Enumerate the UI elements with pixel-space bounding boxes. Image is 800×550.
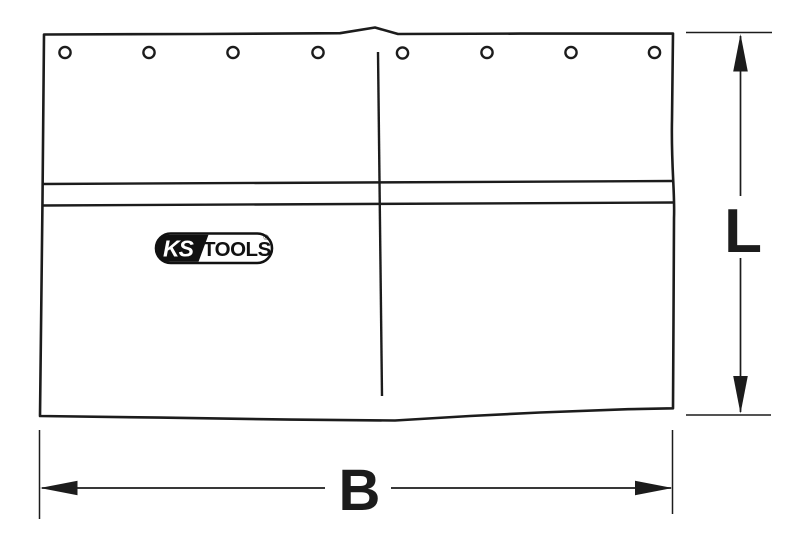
- logo-tools-text: TOOLS: [203, 238, 271, 261]
- width-dim-arrow-right: [635, 481, 673, 496]
- eyelet: [59, 47, 70, 58]
- eyelet: [312, 47, 323, 58]
- height-dimension: L: [686, 33, 772, 416]
- width-dimension-label: B: [339, 458, 381, 523]
- logo-ks-text: KS: [163, 236, 195, 262]
- height-dimension-label: L: [724, 197, 762, 266]
- height-dim-arrow-down: [733, 376, 748, 414]
- width-dim-arrow-left: [40, 481, 78, 496]
- ks-tools-logo: KS TOOLS ®: [156, 234, 272, 264]
- eyelet: [227, 47, 238, 58]
- eyelet: [481, 47, 492, 58]
- logo-registered-mark: ®: [264, 234, 270, 242]
- eyelet: [565, 47, 576, 58]
- width-dimension: B: [40, 430, 673, 523]
- eyelet: [649, 47, 660, 58]
- drawing-canvas: KS TOOLS ® L B: [0, 0, 800, 550]
- eyelet: [397, 47, 408, 58]
- curtain-outline: [40, 28, 674, 421]
- welding-curtain-diagram: KS TOOLS ® L B: [0, 0, 800, 550]
- height-dim-arrow-up: [733, 34, 748, 72]
- eyelet: [143, 47, 154, 58]
